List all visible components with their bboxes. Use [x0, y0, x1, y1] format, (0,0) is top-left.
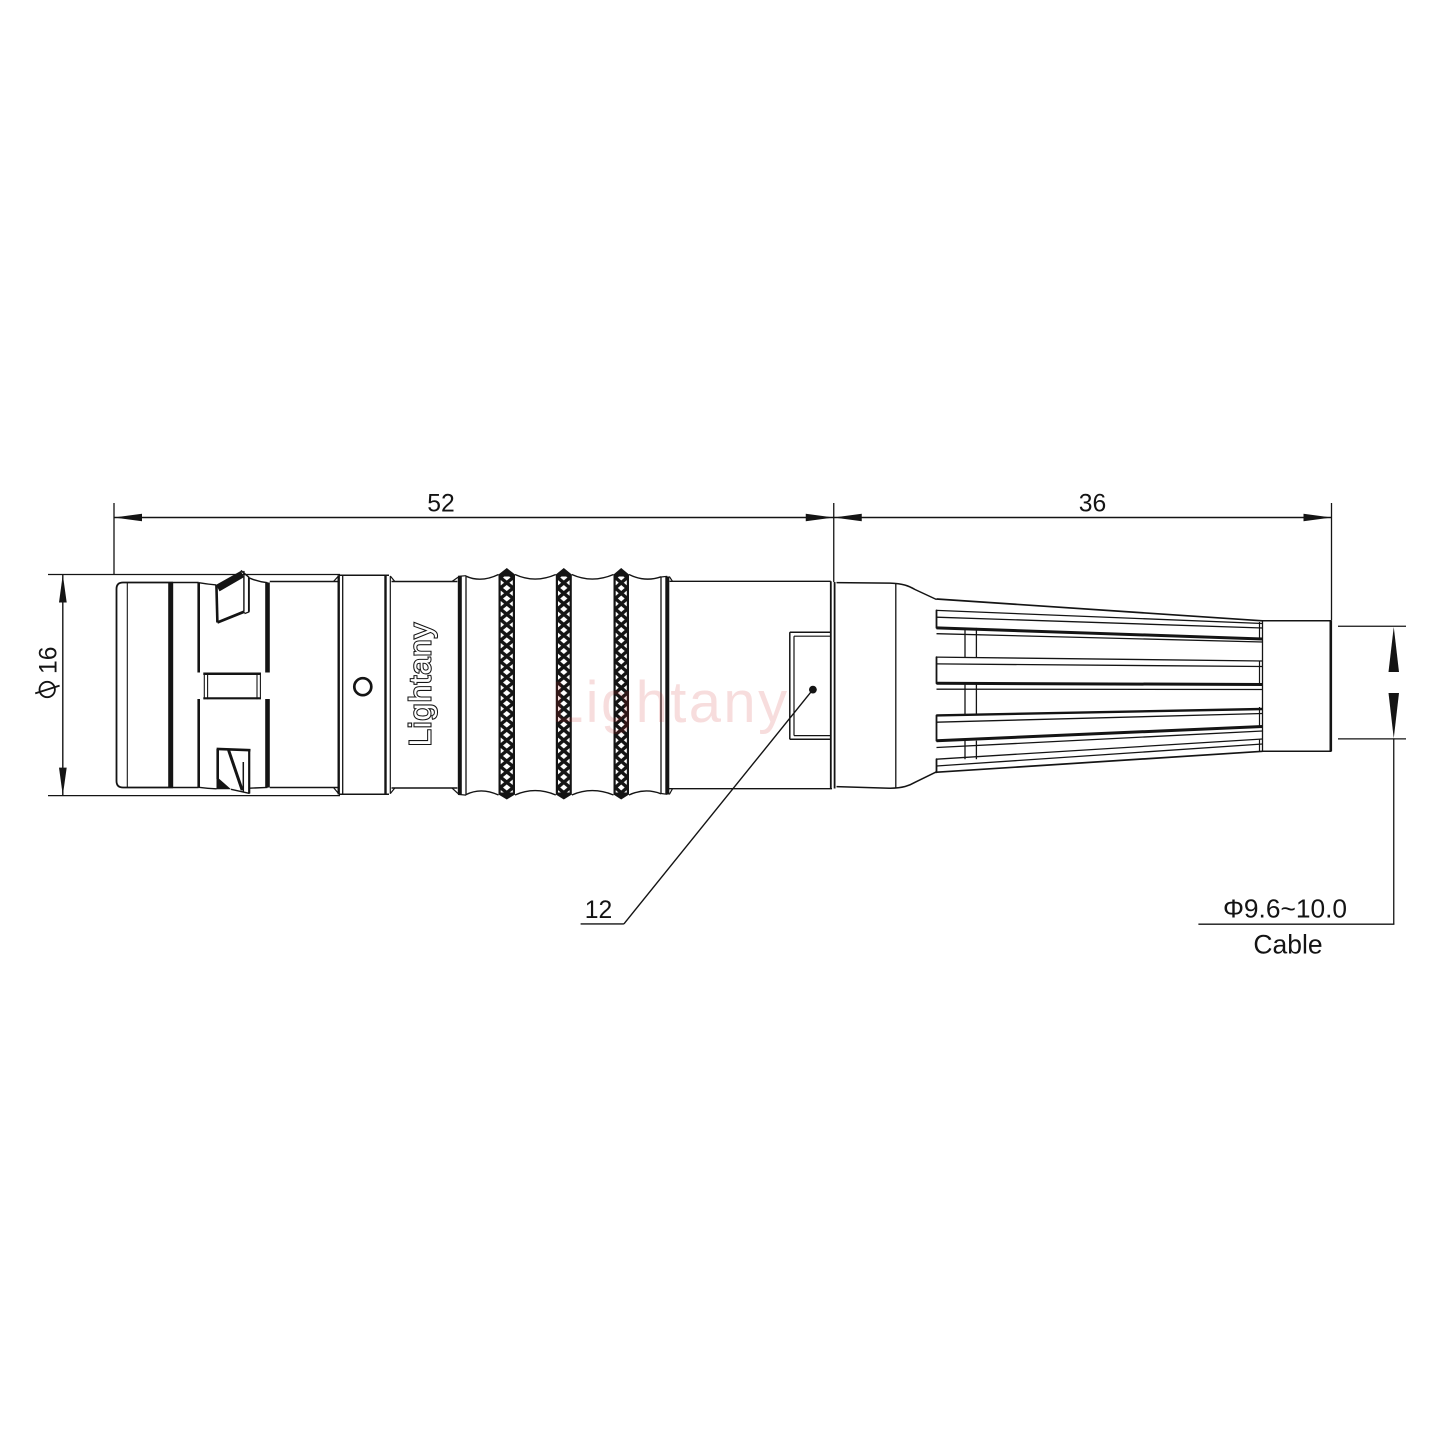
svg-text:Lightany: Lightany	[403, 622, 438, 746]
svg-text:52: 52	[427, 491, 454, 518]
svg-text:12: 12	[585, 897, 612, 924]
svg-text:Φ9.6~10.0: Φ9.6~10.0	[1223, 893, 1347, 923]
svg-text:16: 16	[35, 647, 62, 674]
svg-text:36: 36	[1079, 491, 1106, 518]
svg-text:Cable: Cable	[1253, 930, 1322, 960]
svg-text:Lightany: Lightany	[551, 670, 789, 735]
